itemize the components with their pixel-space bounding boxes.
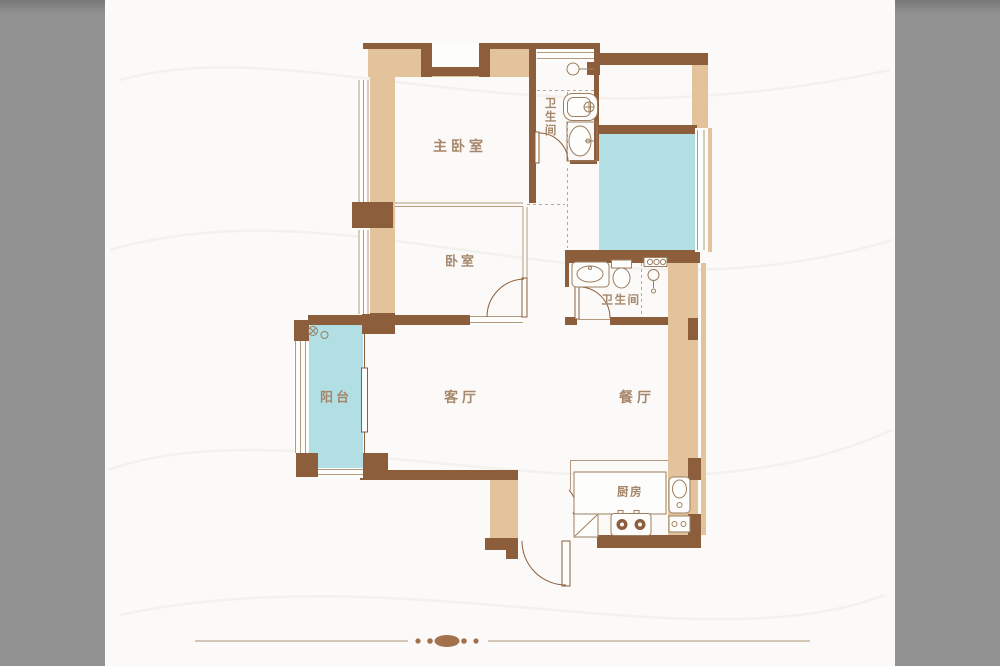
- equipment-platform: [599, 134, 695, 250]
- room-label-dining-room: 餐厅: [619, 389, 655, 405]
- kitchen-sink-fixture: [669, 477, 690, 513]
- room-label-master-bedroom: 主卧室: [433, 138, 487, 154]
- entrance-door: [522, 541, 570, 586]
- floor-plan-page: 主卧室 卫生间 卧室 卫生间 阳台 客厅 餐厅 厨房: [0, 0, 1000, 666]
- room-label-bathroom-1: 卫生间: [542, 97, 555, 138]
- shower-fixture: [644, 258, 667, 294]
- divider-diamond: [435, 635, 460, 647]
- doors: [362, 132, 611, 586]
- room-label-balcony: 阳台: [320, 391, 352, 406]
- room-label-bedroom: 卧室: [445, 255, 477, 270]
- floor-plan-drawing: [0, 0, 1000, 666]
- bedroom-door: [487, 278, 527, 317]
- bathtub-fixture: [564, 94, 598, 121]
- footer-divider: [195, 635, 810, 647]
- exterior-wall-fill: [368, 49, 712, 538]
- gas-meter-fixture: [669, 516, 690, 532]
- room-label-bathroom-2: 卫生间: [602, 294, 641, 307]
- fridge-fixture: [574, 514, 598, 537]
- toilet-fixture: [612, 260, 632, 288]
- stove-fixture: [611, 511, 651, 536]
- pedestal-sink-fixture: [567, 122, 597, 161]
- room-label-kitchen: 厨房: [617, 486, 643, 499]
- washbasin-fixture: [572, 262, 609, 287]
- room-label-living-room: 客厅: [444, 389, 480, 405]
